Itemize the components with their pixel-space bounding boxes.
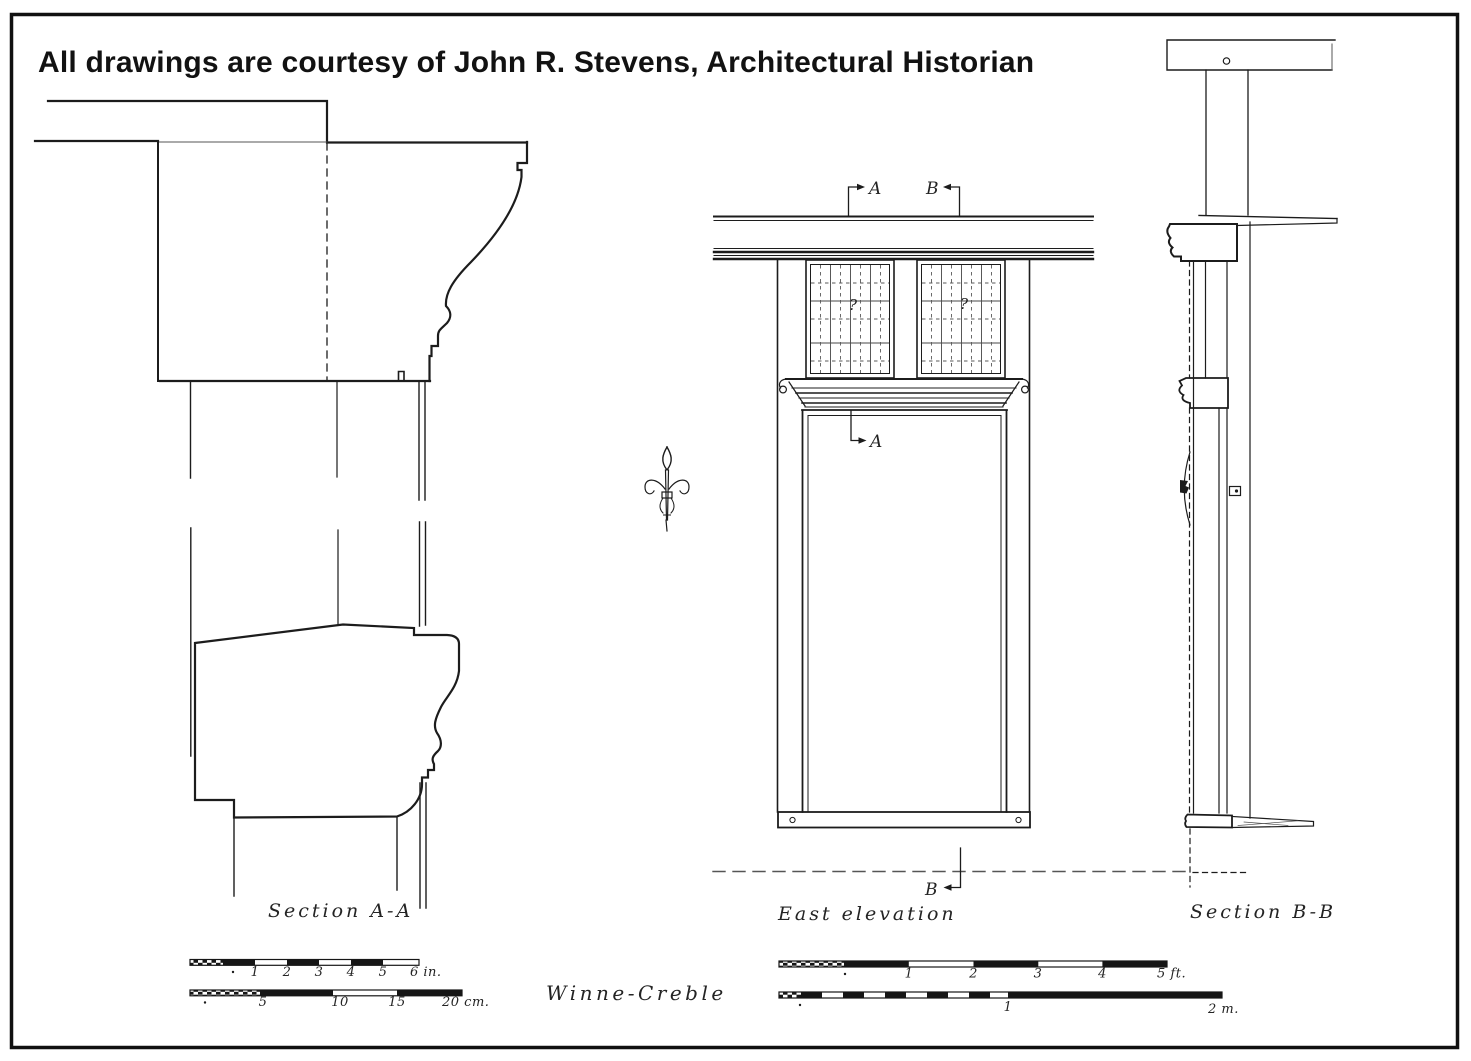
scale-unit-label: 5 ft.	[1157, 967, 1186, 982]
jamb-section-lines	[1190, 222, 1251, 818]
glazing-question-mark: ?	[849, 296, 858, 314]
section-a-label: Section A-A	[268, 900, 413, 922]
marker-a-label: A	[867, 179, 881, 199]
scale-tick-label: 15	[388, 995, 406, 1010]
east-elevation-drawing: A B ? ?	[713, 179, 1187, 925]
scale-tick-label: 1	[1004, 1000, 1013, 1015]
marker-b-label: B	[925, 179, 939, 199]
scale-tick-label: 3	[315, 965, 324, 980]
marker-a-label: A	[868, 432, 882, 452]
scale-tick-label: 4	[1097, 967, 1107, 982]
scale-unit-label: 6 in.	[410, 965, 442, 980]
scale-bar-meters: 1 2 m.	[779, 992, 1239, 1017]
scale-bar-feet: 1 2 3 4 5 ft.	[779, 961, 1186, 982]
transom-bar-section	[1179, 378, 1228, 408]
sill-board	[778, 812, 1030, 828]
scale-tick-label: 2	[968, 967, 978, 982]
transom-sash-right: ?	[917, 260, 1005, 378]
glazing-question-mark: ?	[960, 295, 969, 313]
sill-section-and-board	[1185, 815, 1313, 888]
scale-unit-label: 2 m.	[1207, 1002, 1239, 1017]
eave-and-fascia-lines	[714, 217, 1093, 260]
door-frame	[802, 410, 1007, 812]
scale-tick-label: 5	[379, 965, 388, 980]
scale-unit-label: 20 cm.	[441, 995, 489, 1010]
scale-bar-centimeters: 5 10 15 20 cm.	[190, 990, 489, 1010]
page-border	[12, 15, 1458, 1048]
page-title: All drawings are courtesy of John R. Ste…	[38, 46, 1034, 79]
scale-tick-label: 2	[282, 965, 292, 980]
scale-bar-inches: 1 2 3 4 5 6 in.	[190, 960, 442, 981]
cornice-section-profile	[35, 101, 527, 381]
drawing-sheet: All drawings are courtesy of John R. Ste…	[0, 0, 1471, 1061]
section-marker-b-bottom: B	[924, 848, 961, 900]
scale-tick-label: 10	[331, 995, 349, 1010]
scale-tick-label: 3	[1034, 967, 1043, 982]
north-fleur-de-lis-icon	[645, 447, 689, 531]
credit-label: Winne-Creble	[546, 981, 727, 1005]
section-marker-a-top: A	[849, 179, 882, 215]
transom-sash-left: ?	[806, 260, 894, 378]
jamb-break-lines	[191, 381, 427, 908]
section-marker-a-mid: A	[851, 411, 882, 452]
section-a-drawing: Section A-A	[35, 101, 527, 922]
marker-b-label: B	[924, 880, 938, 900]
scale-tick-label: 1	[905, 967, 914, 982]
scale-tick-label: 4	[346, 965, 356, 980]
window-head-cornice	[779, 379, 1028, 407]
scale-tick-label: 5	[259, 995, 268, 1010]
scale-tick-label: 1	[251, 965, 260, 980]
top-beam	[1167, 40, 1335, 215]
section-b-label: Section B-B	[1190, 901, 1336, 923]
section-b-drawing: Section B-B	[1167, 40, 1337, 923]
section-marker-b-top: B	[925, 179, 960, 215]
east-elevation-label: East elevation	[777, 903, 957, 925]
cornice-block-section	[1167, 224, 1237, 261]
